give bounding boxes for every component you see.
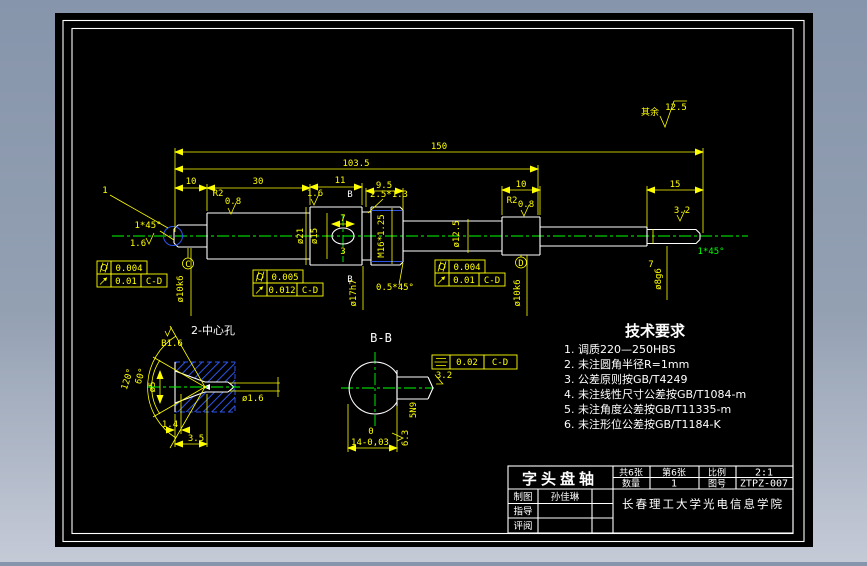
dia-5: ø5 xyxy=(148,382,158,393)
gdt-left-datum: C-D xyxy=(146,277,162,287)
tech-req-item: 5. 未注角度公差按GB/T11335-m xyxy=(564,402,731,416)
groove-callout: 2.5*1.3 xyxy=(370,190,408,200)
gdt-left-runout: 0.01 xyxy=(115,277,137,287)
dim-103-5: 103.5 xyxy=(342,159,369,169)
sym-tol-datum: C-D xyxy=(492,358,508,368)
roughness-08-left: 0.8 xyxy=(225,197,241,207)
roughness-16-end: 1.6 xyxy=(130,239,146,249)
section-title: B-B xyxy=(370,331,392,345)
fillet-r2-right: R2 xyxy=(507,196,518,206)
dia-15: ø15 xyxy=(310,228,320,244)
roughness-08-right: 0.8 xyxy=(518,200,534,210)
chamfer-right: 1*45° xyxy=(697,247,724,257)
roughness-16-keyway: 1.6 xyxy=(307,189,323,199)
chamfer-left: 1*45° xyxy=(134,221,161,231)
tech-req-item: 3. 公差原则按GB/T4249 xyxy=(564,372,687,386)
sym-tol-value: 0.02 xyxy=(456,358,478,368)
gdt-mid-runout: 0.012 xyxy=(268,286,295,296)
dim-3-5: 3.5 xyxy=(188,434,204,444)
part-name: 字头盘轴 xyxy=(522,470,598,488)
tech-req-title: 技术要求 xyxy=(625,322,686,340)
cad-canvas[interactable]: 150 103.5 10 30 11 9.5 2.5*1.3 10 15 R2 … xyxy=(0,0,867,562)
gdt-mid-datum: C-D xyxy=(302,286,318,296)
gdt-right-runout: 0.01 xyxy=(453,276,475,286)
chamfer-thread: 0.5*45° xyxy=(376,283,414,293)
dim-15: 15 xyxy=(670,180,681,190)
gdt-left-cyl: 0.004 xyxy=(115,264,142,274)
tech-req-item: 4. 未注线性尺寸公差按GB/T1084-m xyxy=(564,387,746,401)
sheets-total: 共6张 xyxy=(619,468,643,479)
datum-c-label: C xyxy=(185,260,190,270)
detail-title: 2-中心孔 xyxy=(191,324,235,337)
keyway-len-7: 7 xyxy=(340,214,345,224)
gdt-right-cyl: 0.004 xyxy=(453,263,480,273)
roughness-32-keyseat: 3.2 xyxy=(436,371,452,381)
balloon-1: 1 xyxy=(102,186,107,196)
surface-note-value: 12.5 xyxy=(665,103,687,113)
dim-1-4: 1.4 xyxy=(162,420,178,430)
tech-req-item: 6. 未注形位公差按GB/T1184-K xyxy=(564,417,721,431)
flat-dim-14: 14-0,03 xyxy=(351,438,389,448)
dwg-no-value: ZTPZ-007 xyxy=(740,479,788,490)
dwg-no-label: 图号 xyxy=(708,479,726,490)
roughness-b16: B1.6 xyxy=(161,339,183,349)
dia-10k6-left: ø10k6 xyxy=(176,275,186,302)
gdt-right-datum: C-D xyxy=(484,276,500,286)
dim-150: 150 xyxy=(431,142,447,152)
organization: 长春理工大学光电信息学院 xyxy=(622,497,784,511)
sheet-no: 第6张 xyxy=(662,467,686,479)
dia-21: ø21 xyxy=(296,228,306,244)
gdt-mid-cyl: 0.005 xyxy=(271,273,298,283)
thread-callout: M16*1.25 xyxy=(377,214,387,257)
advisor-label: 指导 xyxy=(513,506,532,518)
drafter-name: 孙佳琳 xyxy=(551,491,580,503)
reviewer-label: 评阅 xyxy=(513,520,532,532)
tech-req-item: 2. 未注圆角半径R=1mm xyxy=(564,357,689,371)
flat-tol-upper: 0 xyxy=(368,427,373,437)
datum-d-label: D xyxy=(518,259,523,269)
qty-value: 1 xyxy=(671,479,677,490)
qty-label: 数量 xyxy=(622,478,640,490)
dia-1-6: ø1.6 xyxy=(242,394,264,404)
dim-7-right: 7 xyxy=(648,260,653,270)
roughness-32-right: 3.2 xyxy=(674,206,690,216)
dia-8g6: ø8g6 xyxy=(654,268,664,290)
dim-30: 30 xyxy=(253,177,264,187)
dim-10-right: 10 xyxy=(516,180,527,190)
dim-10-left: 10 xyxy=(186,177,197,187)
keyway-width-5n9: 5N9 xyxy=(409,402,419,418)
dia-12-5: ø12.5 xyxy=(452,220,462,247)
scale-label: 比例 xyxy=(708,467,726,479)
dia-10k6-right: ø10k6 xyxy=(513,279,523,306)
drafter-label: 制图 xyxy=(513,491,532,503)
dim-11: 11 xyxy=(335,176,346,186)
tech-req-item: 1. 调质220—250HBS xyxy=(564,343,676,356)
section-marker-top: B xyxy=(347,190,352,200)
scale-value: 2:1 xyxy=(755,468,773,479)
surface-note-prefix: 其余 xyxy=(641,106,659,118)
fillet-r2-left: R2 xyxy=(213,189,224,199)
section-marker-bottom: B xyxy=(347,275,352,285)
keyway-depth-3: 3 xyxy=(340,247,345,257)
